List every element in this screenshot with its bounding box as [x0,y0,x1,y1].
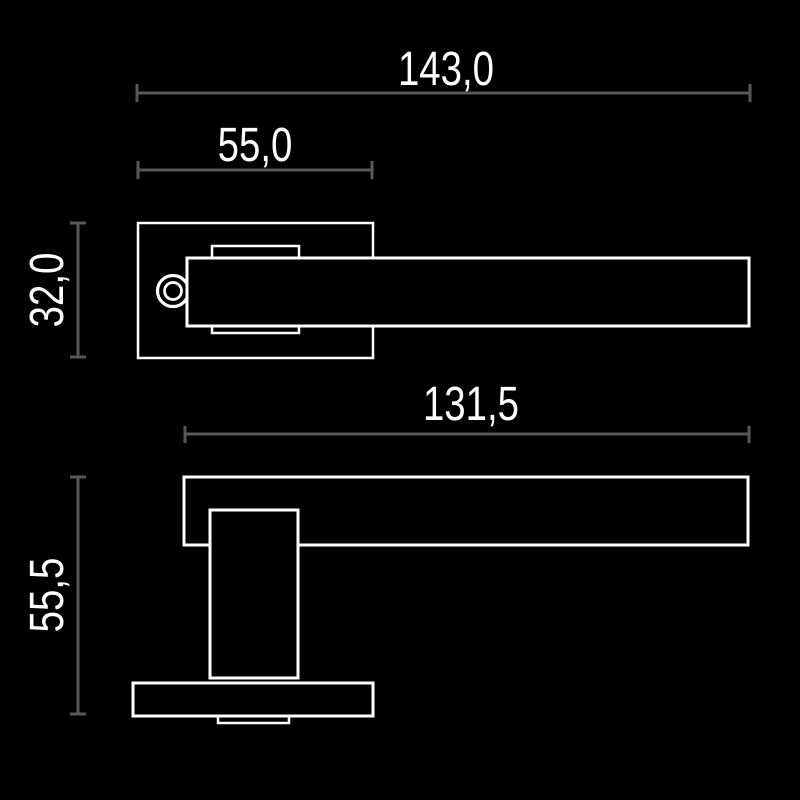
dim-label-total-height: 55,5 [21,558,74,633]
dim-label-rose-width: 55,0 [218,119,293,172]
dimension-total-length: 143,0 [137,43,750,102]
dim-label-lever-length: 131,5 [423,378,519,431]
dim-label-protrusion: 32,0 [21,253,74,328]
spindle-inner-circle [165,283,182,300]
technical-drawing: 143,0 55,0 32,0 [0,0,800,800]
drawing-canvas: 143,0 55,0 32,0 [0,0,800,800]
dimension-rose-width: 55,0 [138,119,372,179]
front-view: 131,5 55,5 [21,378,749,723]
lever-bar-top-view [187,258,749,326]
dimension-total-height: 55,5 [21,477,86,714]
dim-label-total-length: 143,0 [398,43,494,96]
neck-front-view [210,510,298,678]
top-view: 143,0 55,0 32,0 [21,43,750,358]
rose-plate-front-view [133,683,373,716]
dimension-protrusion: 32,0 [21,223,86,357]
dimension-lever-length: 131,5 [185,378,749,443]
